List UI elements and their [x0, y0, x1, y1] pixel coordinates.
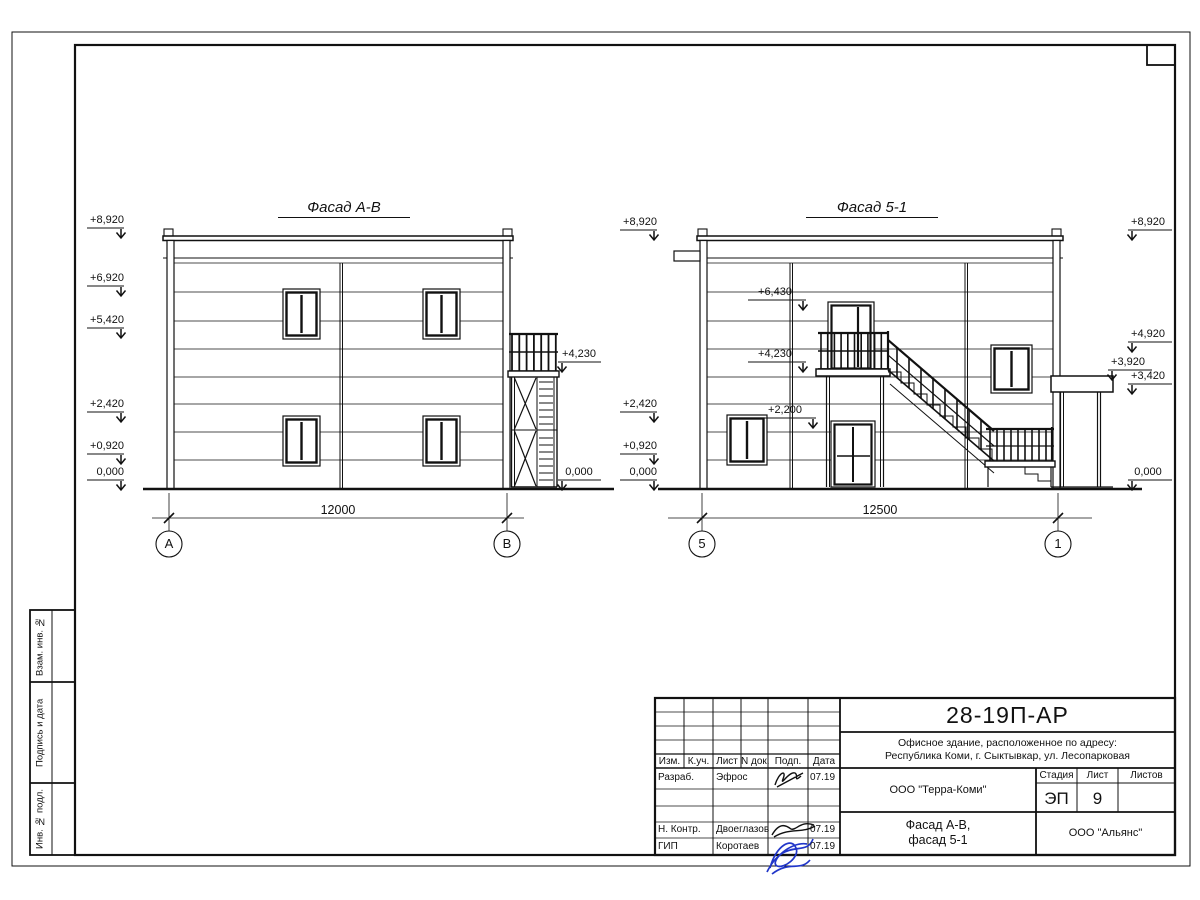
contractor-name: ООО "Альянс"	[1036, 827, 1175, 840]
project-address-line2: Республика Коми, г. Сыктывкар, ул. Лесоп…	[850, 750, 1165, 763]
tb-date-nkontr: 07.19	[810, 824, 835, 836]
stamp-vzam-inv: Взам. инв. №	[31, 611, 51, 681]
dimension-12000: 12000	[298, 503, 378, 517]
document-number: 28-19П-АР	[840, 702, 1175, 728]
elevation-mark-8920-left: +8,920	[607, 216, 657, 229]
tb-col-kuch: К.уч.	[684, 756, 713, 768]
window	[423, 416, 460, 466]
drawing-title-line1: Фасад А-В,	[840, 818, 1036, 833]
tb-name-efros: Эфрос	[716, 772, 748, 784]
stair-tower	[508, 334, 559, 487]
signature-nkontr	[772, 824, 815, 837]
axis-bubble-a: А	[156, 537, 182, 552]
tb-role-nkontr: Н. Контр.	[658, 824, 701, 836]
stage-label: Стадия	[1036, 770, 1077, 782]
elevation-mark-4230-stair: +4,230	[556, 348, 602, 361]
signature-gip	[767, 839, 813, 874]
dimension-12500: 12500	[840, 503, 920, 517]
tb-date-gip: 07.19	[810, 841, 835, 853]
tb-role-gip: ГИП	[658, 841, 678, 853]
elevation-mark-2420: +2,420	[607, 398, 657, 411]
drawing-title-line2: фасад 5-1	[840, 833, 1036, 848]
facade-ab-title: Фасад А-В	[278, 199, 410, 218]
window	[423, 289, 460, 339]
project-address-line1: Офисное здание, расположенное по адресу:	[850, 737, 1165, 750]
elevation-mark-2420: +2,420	[74, 398, 124, 411]
elevation-mark-8920-right: +8,920	[1124, 216, 1172, 229]
porch-canopy	[1051, 376, 1113, 487]
axis-bubble-1: 1	[1045, 537, 1071, 552]
sheets-label: Листов	[1118, 770, 1175, 782]
window	[283, 289, 320, 339]
elevation-mark-5420: +5,420	[74, 314, 124, 327]
stamp-inv-podl: Инв. № подл.	[31, 784, 51, 854]
tb-col-ndok: N док.	[741, 756, 768, 768]
elevation-mark-0000: 0,000	[74, 466, 124, 479]
sheet-number: 9	[1077, 789, 1118, 809]
axis-bubble-5: 5	[689, 537, 715, 552]
stage-value: ЭП	[1036, 789, 1077, 809]
org-name: ООО "Терра-Коми"	[840, 784, 1036, 797]
tb-role-razrab: Разраб.	[658, 772, 694, 784]
elevation-mark-4920: +4,920	[1124, 328, 1172, 341]
elevation-mark-0000-right: 0,000	[556, 466, 602, 479]
axis-bubble-b: В	[494, 537, 520, 552]
elevation-mark-0000-left: 0,000	[607, 466, 657, 479]
elevation-mark-3420: +3,420	[1124, 370, 1172, 383]
elevation-mark-4230: +4,230	[748, 348, 802, 361]
stamp-podpis-data: Подпись и дата	[31, 683, 51, 782]
tb-col-data: Дата	[808, 756, 840, 768]
elevation-mark-0920: +0,920	[607, 440, 657, 453]
drawing-linework	[0, 0, 1200, 900]
window	[991, 345, 1032, 393]
tb-date-razrab: 07.19	[810, 772, 835, 784]
tb-col-podp: Подп.	[768, 756, 808, 768]
elevation-mark-0000-right: 0,000	[1124, 466, 1172, 479]
elevation-mark-6430: +6,430	[748, 286, 802, 299]
entrance-door	[831, 421, 875, 487]
elevation-mark-2200: +2,200	[758, 404, 812, 417]
elevation-mark-0920: +0,920	[74, 440, 124, 453]
window	[283, 416, 320, 466]
tb-name-dvoeglazov: Двоеглазов	[716, 824, 769, 836]
window	[727, 415, 767, 465]
facade-51-title: Фасад 5-1	[806, 199, 938, 218]
tb-col-list: Лист	[713, 756, 741, 768]
signature-razrab	[775, 773, 803, 787]
elevation-mark-3920: +3,920	[1104, 356, 1152, 369]
elevation-mark-8920: +8,920	[74, 214, 124, 227]
tb-name-korotaev: Коротаев	[716, 841, 759, 853]
wall-protrusion	[674, 251, 700, 261]
tb-col-izm: Изм.	[655, 756, 684, 768]
elevation-mark-6920: +6,920	[74, 272, 124, 285]
drawing-sheet: Фасад А-В Фасад 5-1 +8,920 +6,920 +5,420…	[0, 0, 1200, 900]
corner-box	[1147, 45, 1175, 65]
sheet-label: Лист	[1077, 770, 1118, 782]
